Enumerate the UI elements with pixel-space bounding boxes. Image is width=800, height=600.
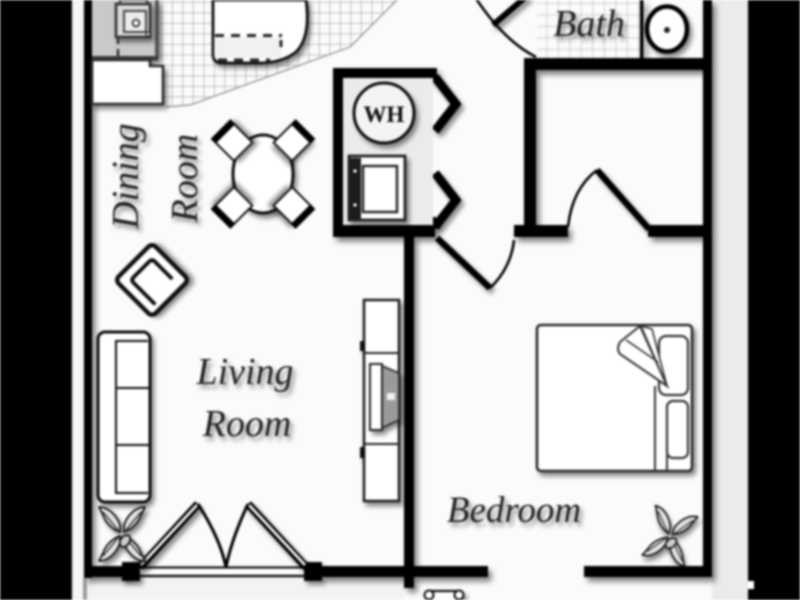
svg-text:Bath: Bath [553, 3, 625, 45]
svg-text:Living: Living [195, 351, 293, 393]
svg-text:Room: Room [202, 403, 292, 445]
svg-text:Bedroom: Bedroom [447, 490, 581, 531]
svg-text:Dining: Dining [105, 123, 147, 230]
svg-text:WH: WH [364, 102, 405, 127]
svg-text:Room: Room [164, 134, 206, 224]
